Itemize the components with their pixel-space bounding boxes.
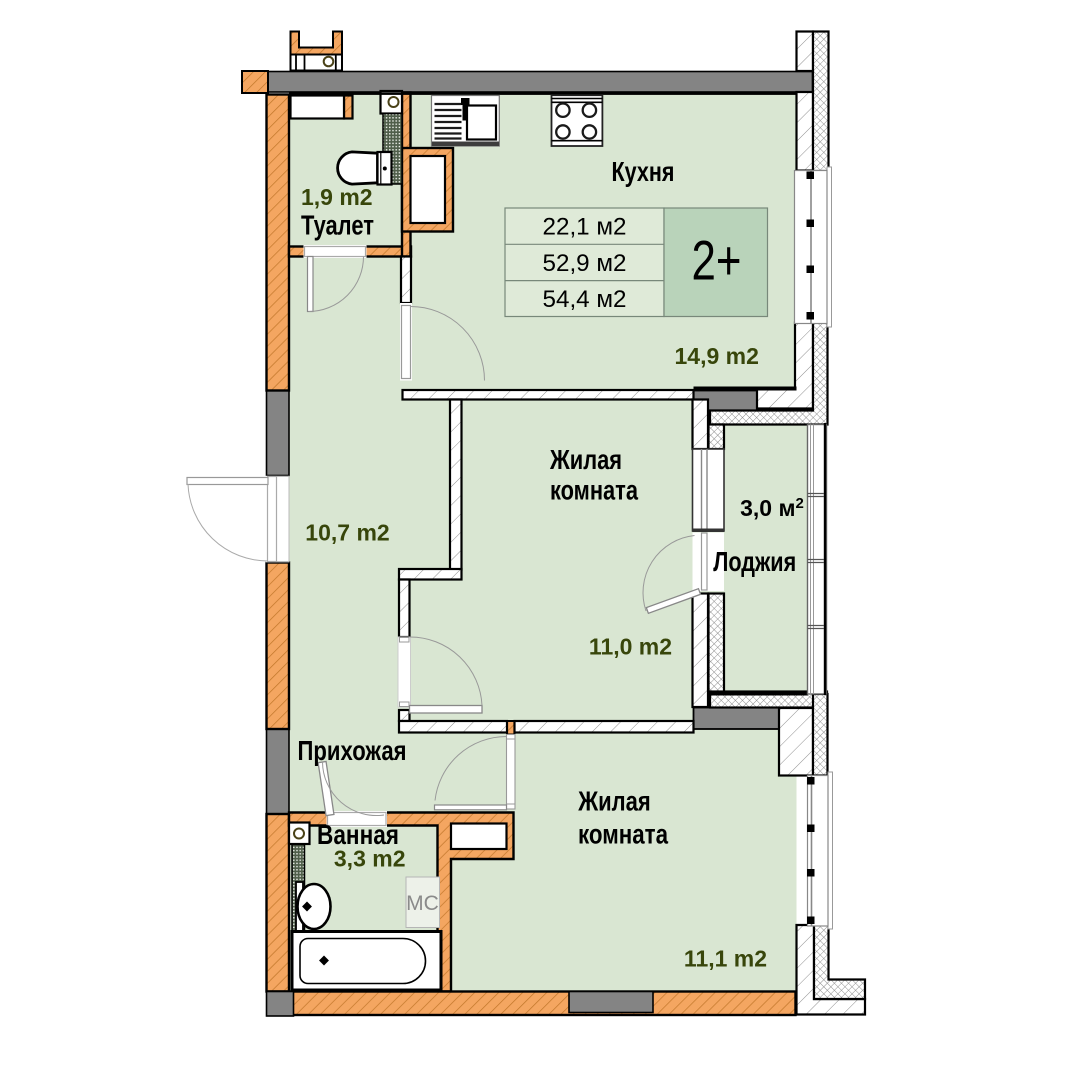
- svg-text:Лоджия: Лоджия: [713, 546, 796, 577]
- svg-text:Жилая: Жилая: [577, 786, 650, 817]
- svg-text:14,9 m2: 14,9 m2: [674, 343, 758, 369]
- svg-text:Кухня: Кухня: [612, 156, 675, 187]
- svg-text:11,0 m2: 11,0 m2: [589, 634, 672, 660]
- svg-text:1,9 m2: 1,9 m2: [301, 184, 373, 210]
- svg-text:комната: комната: [578, 819, 669, 850]
- svg-text:МС: МС: [406, 892, 439, 915]
- svg-text:Жилая: Жилая: [549, 444, 622, 475]
- svg-text:2+: 2+: [692, 228, 742, 291]
- svg-text:комната: комната: [550, 475, 639, 506]
- svg-text:Туалет: Туалет: [301, 210, 374, 241]
- svg-text:10,7 m2: 10,7 m2: [305, 520, 389, 546]
- svg-text:52,9 м2: 52,9 м2: [543, 250, 627, 277]
- svg-text:54,4 м2: 54,4 м2: [543, 286, 627, 313]
- svg-text:11,1 m2: 11,1 m2: [684, 946, 767, 972]
- svg-text:Прихожая: Прихожая: [298, 735, 407, 766]
- svg-text:22,1 м2: 22,1 м2: [543, 214, 627, 241]
- svg-text:3,3 m2: 3,3 m2: [334, 846, 406, 872]
- svg-text:3,0 м2: 3,0 м2: [740, 495, 804, 521]
